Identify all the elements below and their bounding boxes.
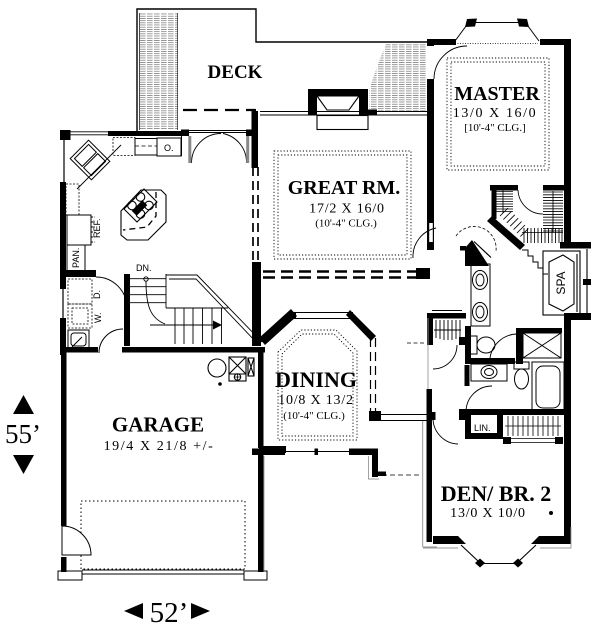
svg-text:W.: W.	[93, 313, 103, 324]
svg-text:[10'-4" CLG.]: [10'-4" CLG.]	[464, 122, 525, 134]
svg-text:17/2 X 16/0: 17/2 X 16/0	[309, 202, 385, 217]
svg-text:DINING: DINING	[275, 367, 357, 392]
svg-text:DN.: DN.	[136, 263, 152, 273]
svg-text:LIN.: LIN.	[474, 423, 491, 433]
svg-text:(10'-4" CLG.): (10'-4" CLG.)	[315, 218, 377, 230]
svg-text:PAN.: PAN.	[71, 248, 81, 268]
svg-text:DEN/ BR. 2: DEN/ BR. 2	[441, 481, 552, 506]
svg-text:D.: D.	[92, 290, 102, 299]
svg-text:REF.: REF.	[92, 218, 102, 238]
svg-text:10/8 X 13/2: 10/8 X 13/2	[278, 393, 354, 408]
svg-text:13/0 X 10/0: 13/0 X 10/0	[450, 506, 526, 521]
svg-text:O.: O.	[164, 143, 174, 153]
svg-text:52’: 52’	[150, 597, 189, 629]
svg-text:19/4 X 21/8 +/-: 19/4 X 21/8 +/-	[104, 439, 215, 454]
svg-text:(10'-4" CLG.): (10'-4" CLG.)	[283, 410, 345, 422]
svg-text:GARAGE: GARAGE	[112, 413, 204, 437]
svg-text:SPA: SPA	[554, 271, 568, 294]
svg-text:DECK: DECK	[208, 62, 263, 83]
svg-text:GREAT RM.: GREAT RM.	[288, 177, 401, 199]
svg-text:13/0 X 16/0: 13/0 X 16/0	[453, 106, 538, 121]
svg-text:55’: 55’	[5, 419, 41, 449]
svg-text:MASTER: MASTER	[454, 83, 540, 105]
